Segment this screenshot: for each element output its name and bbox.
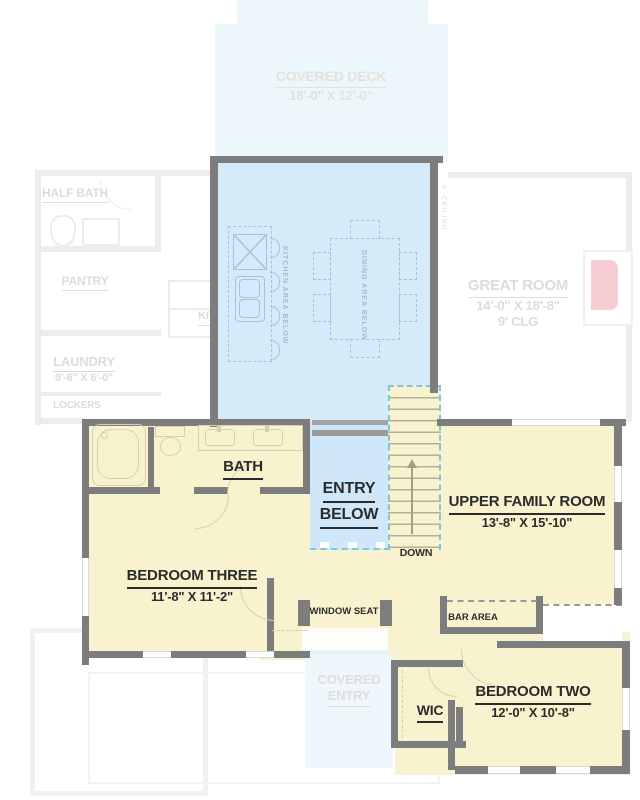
window-marker	[376, 542, 385, 548]
room-name-line2: ENTRY	[328, 688, 371, 706]
room-label-half-bath: HALF BATH	[35, 186, 115, 203]
room-dims: 14'-0" X 18'-8"	[448, 298, 588, 314]
window-seat-label: WINDOW SEAT	[304, 606, 384, 618]
faucet	[265, 426, 269, 432]
window	[246, 651, 274, 658]
dining-area-below-label: DINING AREA BELOW	[360, 250, 367, 341]
room-label-entry-below: ENTRY BELOW	[309, 477, 389, 529]
bar-area-label: BAR AREA	[443, 612, 503, 624]
wall	[35, 170, 218, 176]
dining-chair	[399, 252, 417, 280]
room-label-bath: BATH	[203, 458, 283, 480]
wall	[210, 156, 218, 427]
wall	[35, 418, 87, 424]
room-name: BEDROOM THREE	[127, 567, 258, 589]
room-name: COVERED DECK	[276, 68, 386, 88]
wall	[448, 172, 632, 178]
wall	[148, 427, 154, 487]
stairs-down-label: DOWN	[394, 547, 438, 560]
family-room-south-gap	[543, 604, 622, 643]
room-name: LOCKERS	[53, 400, 101, 411]
window-marker	[348, 542, 357, 548]
room-ceiling: 9' CLG	[448, 314, 588, 330]
deck-notch	[215, 0, 237, 24]
bathtub-faucet	[101, 432, 108, 439]
cooktop	[233, 234, 267, 270]
wall	[82, 419, 89, 665]
stairs-arrow-head	[407, 459, 417, 468]
dining-chair	[313, 294, 331, 322]
bathtub	[92, 424, 146, 486]
room-name-line1: ENTRY	[323, 477, 376, 503]
wall	[35, 330, 161, 336]
wall	[600, 419, 626, 426]
room-name: GREAT ROOM	[468, 277, 568, 298]
entry-header-beam	[312, 430, 388, 436]
down-text: DOWN	[400, 547, 432, 559]
dining-chair	[350, 339, 380, 358]
sink-bowl	[239, 279, 260, 298]
wall	[35, 170, 41, 425]
sink	[82, 218, 120, 246]
room-name: BATH	[223, 458, 263, 480]
toilet	[50, 215, 76, 247]
room-label-laundry: LAUNDRY 9'-6" X 6'-0"	[24, 354, 144, 386]
sink-bowl	[239, 299, 260, 318]
room-name: LAUNDRY	[53, 354, 115, 372]
bar-counter	[447, 600, 537, 602]
wall	[35, 246, 161, 252]
stairs-direction-line	[411, 468, 413, 534]
room-label-covered-entry: COVERED ENTRY	[309, 672, 389, 707]
room-name-line2: BELOW	[320, 503, 379, 529]
dining-chair	[350, 220, 380, 239]
room-label-upper-family-room: UPPER FAMILY ROOM 13'-8" X 15'-10"	[437, 493, 617, 531]
room-name: UPPER FAMILY ROOM	[449, 493, 606, 515]
wall	[391, 741, 466, 748]
wall	[82, 487, 160, 494]
kitchen-sink	[235, 276, 265, 322]
cooktop-x-icon	[234, 235, 266, 269]
room-name: WIC	[417, 702, 444, 723]
window	[622, 688, 630, 730]
wall	[391, 660, 398, 748]
room-name: PANTRY	[62, 274, 109, 291]
window	[614, 550, 622, 588]
entry-header-beam	[312, 420, 388, 425]
wall	[430, 156, 438, 393]
label-text: BAR AREA	[448, 612, 498, 623]
wall	[210, 156, 443, 163]
wall	[437, 419, 512, 426]
window	[82, 558, 89, 616]
appliance	[168, 280, 212, 310]
faucet	[217, 426, 221, 432]
room-label-pantry: PANTRY	[45, 274, 125, 291]
room-dims: 18'-0" X 12'-0"	[241, 88, 421, 104]
toilet-tank	[155, 426, 185, 437]
wall	[455, 766, 630, 774]
wall	[82, 651, 310, 658]
closet-shelf	[272, 630, 308, 631]
room-label-lockers: LOCKERS	[37, 400, 117, 413]
wall	[35, 392, 161, 396]
room-dims: 11'-8" X 11'-2"	[102, 589, 282, 605]
label-text: WINDOW SEAT	[310, 606, 379, 617]
room-label-bedroom-two: BEDROOM TWO 12'-0" X 10'-8"	[443, 683, 623, 721]
deck-notch	[428, 0, 448, 24]
wall	[497, 641, 630, 648]
room-name-line1: COVERED	[309, 672, 389, 688]
second-floor-plan: HALF BATH PANTRY LAUNDRY 9'-6" X 6'-0" L…	[0, 0, 640, 800]
room-name: BEDROOM TWO	[475, 683, 590, 705]
room-name: HALF BATH	[42, 186, 108, 203]
fireplace-insert	[591, 260, 618, 310]
room-dims: 9'-6" X 6'-0"	[24, 372, 144, 386]
wall	[155, 170, 161, 252]
kitchen-area-below-label: KITCHEN AREA BELOW	[281, 246, 288, 344]
wall	[440, 627, 543, 634]
room-label-covered-deck: COVERED DECK 18'-0" X 12'-0"	[241, 68, 421, 104]
dining-chair	[399, 294, 417, 322]
wall	[194, 487, 228, 494]
window-marker	[320, 542, 329, 548]
window	[488, 766, 520, 774]
ceiling-note: 9' CEILING	[440, 185, 447, 231]
room-dims: 12'-0" X 10'-8"	[443, 705, 623, 721]
room-label-great-room: GREAT ROOM 14'-0" X 18'-8" 9' CLG	[448, 277, 588, 330]
room-dims: 13'-8" X 15'-10"	[437, 515, 617, 531]
window	[556, 766, 590, 774]
window	[143, 651, 171, 658]
window	[512, 419, 600, 426]
room-label-bedroom-three: BEDROOM THREE 11'-8" X 11'-2"	[102, 567, 282, 605]
wall	[391, 660, 463, 667]
toilet-bowl	[160, 437, 181, 456]
dining-chair	[313, 252, 331, 280]
